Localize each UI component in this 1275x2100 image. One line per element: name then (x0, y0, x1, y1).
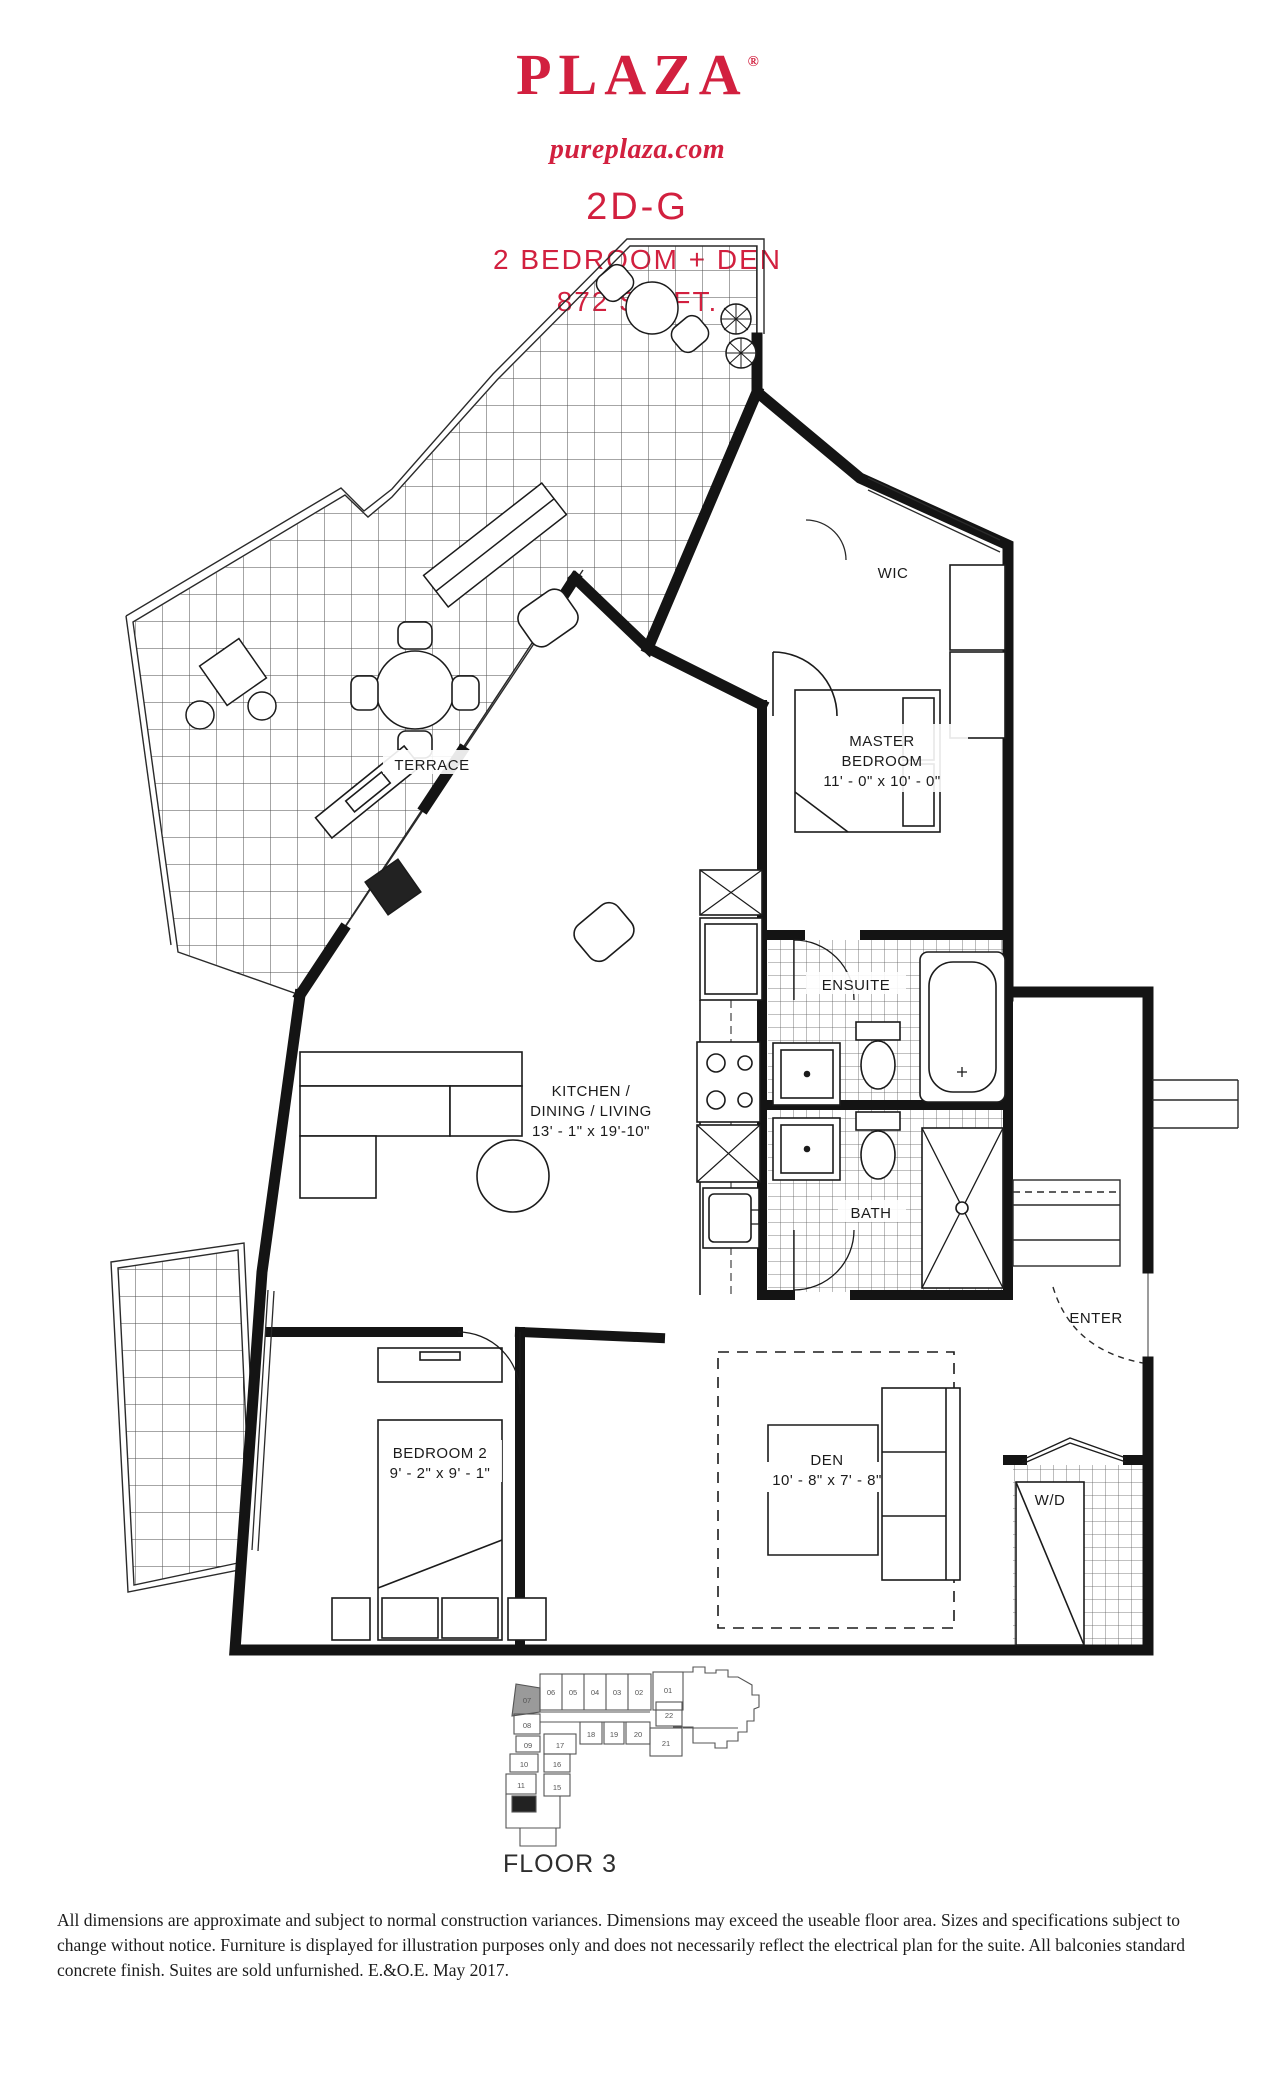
room-dims-bedroom2: 9' - 2" x 9' - 1" (390, 1465, 491, 1482)
room-label-ensuite: ENSUITE (822, 977, 891, 994)
room-dims-den: 10' - 8" x 7' - 8" (772, 1472, 882, 1489)
keyplan-unit: 06 (547, 1688, 555, 1697)
keyplan-unit: 16 (553, 1760, 561, 1769)
room-label-terrace: TERRACE (394, 757, 469, 774)
room-label-wd: W/D (1035, 1492, 1066, 1509)
keyplan-unit: 04 (591, 1688, 599, 1697)
room-label-master-2: BEDROOM (841, 753, 922, 770)
keyplan-unit: 21 (662, 1739, 670, 1748)
disclaimer-text: All dimensions are approximate and subje… (57, 1908, 1222, 1983)
floor-label: FLOOR 3 (503, 1850, 617, 1878)
brochure-page: PLAZA® pureplaza.com 2D-G 2 BEDROOM + DE… (0, 0, 1275, 2100)
room-label-kitchen-2: DINING / LIVING (530, 1103, 652, 1120)
keyplan-unit: 03 (613, 1688, 621, 1697)
room-label-bedroom2: BEDROOM 2 (393, 1445, 488, 1462)
keyplan (506, 1667, 759, 1846)
keyplan-unit: 18 (587, 1730, 595, 1739)
keyplan-unit: 15 (553, 1783, 561, 1792)
keyplan-unit: 22 (665, 1711, 673, 1720)
keyplan-unit: 17 (556, 1741, 564, 1750)
keyplan-unit: 09 (524, 1741, 532, 1750)
room-dims-kitchen: 13' - 1" x 19'-10" (532, 1123, 650, 1140)
keyplan-unit: 20 (634, 1730, 642, 1739)
floor-plan-drawing: WIC MASTER BEDROOM 11' - 0" x 10' - 0" T… (0, 0, 1275, 2100)
lower-balcony-area (111, 1243, 259, 1592)
room-label-kitchen-1: KITCHEN / (552, 1083, 631, 1100)
room-label-bath: BATH (851, 1205, 892, 1222)
keyplan-unit: 02 (635, 1688, 643, 1697)
keyplan-unit: 10 (520, 1760, 528, 1769)
room-label-wic: WIC (878, 565, 909, 582)
room-label-den: DEN (810, 1452, 843, 1469)
room-label-master-1: MASTER (849, 733, 915, 750)
room-label-enter: ENTER (1069, 1310, 1122, 1327)
keyplan-unit: 11 (517, 1781, 525, 1790)
keyplan-unit: 05 (569, 1688, 577, 1697)
room-dims-master: 11' - 0" x 10' - 0" (823, 773, 940, 790)
keyplan-unit: 08 (523, 1721, 531, 1730)
keyplan-unit: 01 (664, 1686, 672, 1695)
keyplan-unit-highlighted: 07 (523, 1696, 531, 1705)
entry-closet (1013, 1180, 1120, 1266)
kitchen-fixtures (697, 870, 762, 1295)
keyplan-unit: 19 (610, 1730, 618, 1739)
